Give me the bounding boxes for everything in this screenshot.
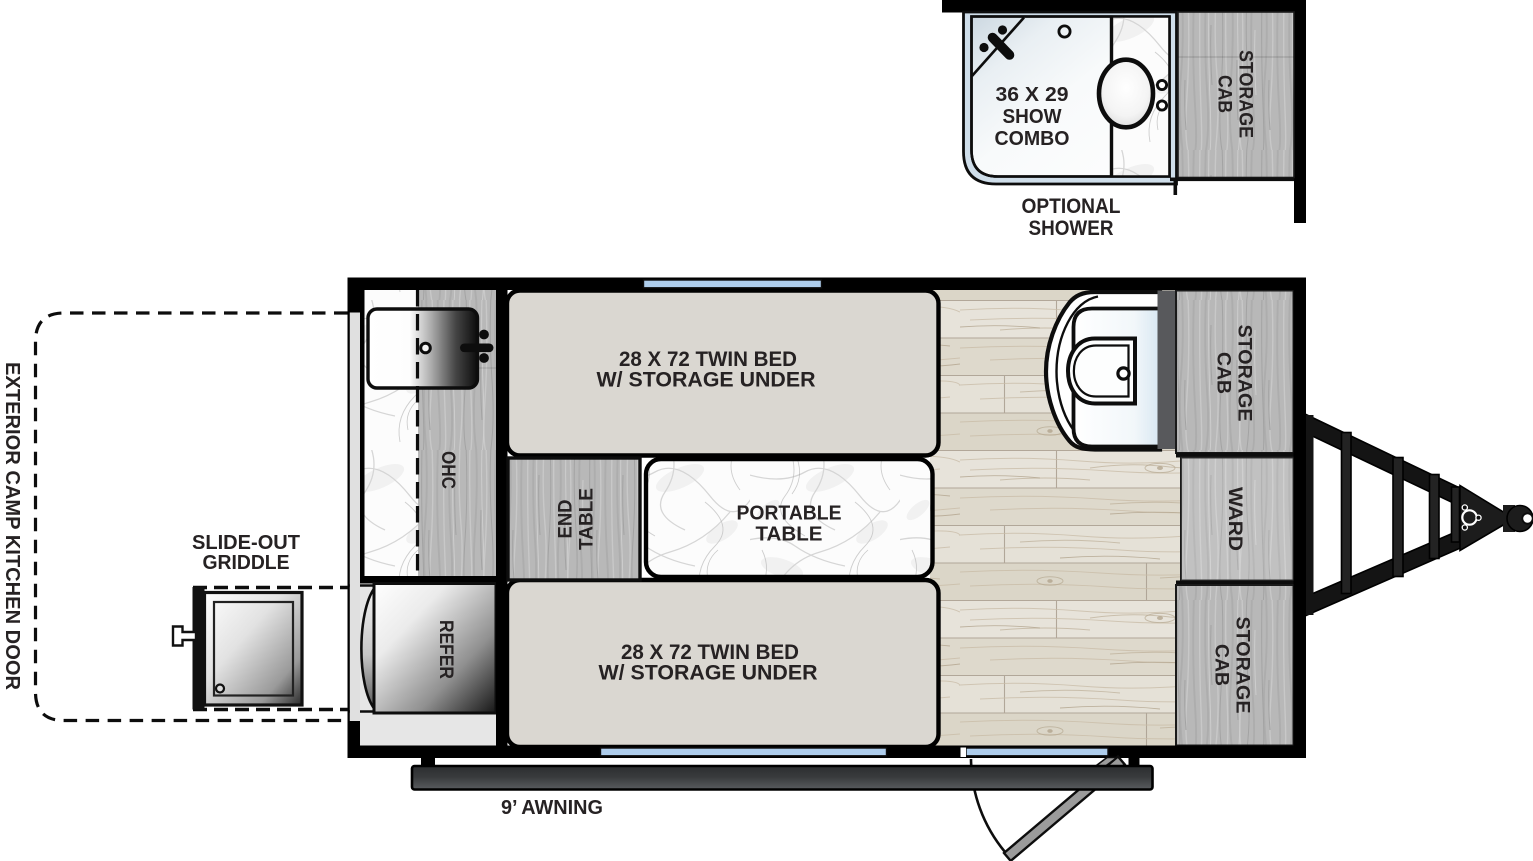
svg-text:END: END (555, 500, 577, 539)
svg-text:COMBO: COMBO (995, 127, 1070, 150)
svg-text:TABLE: TABLE (756, 523, 823, 546)
svg-text:STORAGE: STORAGE (1235, 50, 1257, 138)
svg-text:CAB: CAB (1214, 75, 1236, 113)
svg-text:WARD: WARD (1224, 487, 1246, 551)
svg-text:REFER: REFER (435, 620, 457, 679)
svg-text:EXTERIOR CAMP KITCHEN DOOR: EXTERIOR CAMP KITCHEN DOOR (1, 362, 24, 690)
svg-text:W/ STORAGE UNDER: W/ STORAGE UNDER (599, 661, 818, 685)
svg-text:PORTABLE: PORTABLE (737, 502, 842, 525)
svg-text:36 X 29: 36 X 29 (996, 83, 1069, 106)
svg-text:STORAGE: STORAGE (1232, 617, 1254, 714)
svg-text:OPTIONAL: OPTIONAL (1022, 194, 1121, 218)
svg-text:OHC: OHC (437, 451, 459, 489)
svg-text:SHOWER: SHOWER (1029, 216, 1114, 240)
svg-text:W/ STORAGE UNDER: W/ STORAGE UNDER (597, 368, 816, 392)
svg-text:GRIDDLE: GRIDDLE (203, 552, 290, 574)
svg-text:CAB: CAB (1213, 352, 1235, 394)
svg-text:SLIDE-OUT: SLIDE-OUT (192, 532, 300, 554)
svg-text:9’ AWNING: 9’ AWNING (501, 796, 603, 819)
svg-text:SHOW: SHOW (1003, 105, 1063, 128)
svg-text:TABLE: TABLE (576, 488, 598, 550)
svg-text:STORAGE: STORAGE (1234, 325, 1256, 422)
svg-text:CAB: CAB (1211, 644, 1233, 686)
